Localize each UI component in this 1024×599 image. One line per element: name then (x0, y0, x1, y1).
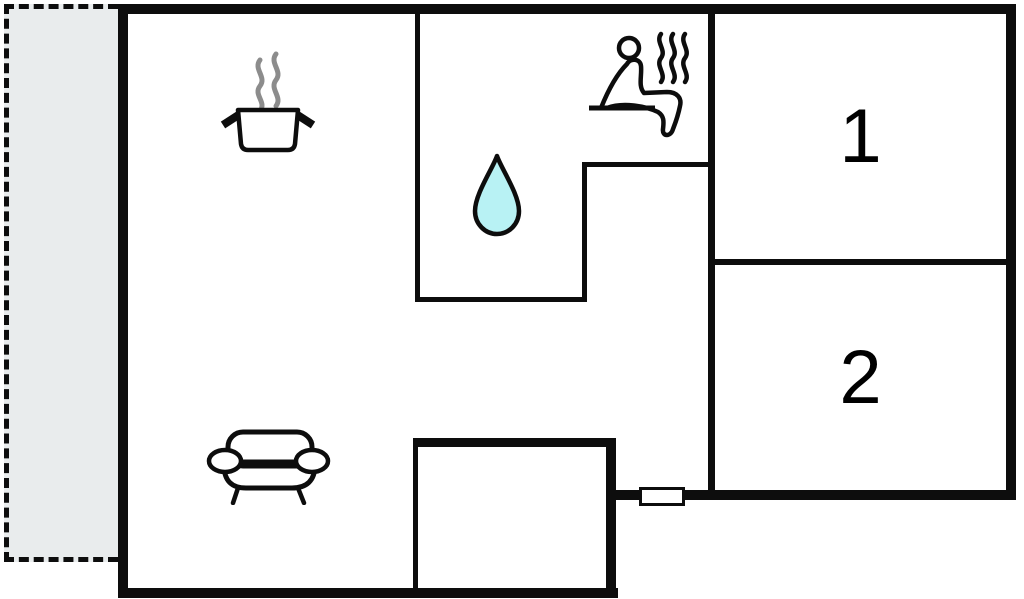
wall-outer-bottom (118, 588, 618, 598)
floor-plan: 1 2 (0, 0, 1024, 599)
wall-storage-right (606, 438, 616, 598)
wall-outer-right (1006, 4, 1016, 500)
room-1-label: 1 (715, 14, 1006, 259)
wall-sauna-bottom (582, 162, 715, 167)
wall-bathroom-bottom (415, 297, 587, 302)
wall-storage-left (413, 438, 418, 598)
wall-outer-top (118, 4, 1016, 14)
wall-storage-top (413, 438, 616, 447)
wall-outer-left (118, 4, 128, 598)
wall-bathroom-left (415, 8, 420, 302)
sofa-icon (200, 425, 335, 505)
terrace-dashed-area (4, 4, 118, 562)
door-marker (639, 487, 685, 506)
wall-bedrooms-left (708, 4, 715, 500)
water-drop-icon (455, 148, 540, 243)
sauna-person-icon (585, 28, 705, 140)
wall-bathroom-right (582, 163, 587, 302)
cooking-pot-icon (213, 48, 323, 158)
room-2-label: 2 (715, 265, 1006, 490)
